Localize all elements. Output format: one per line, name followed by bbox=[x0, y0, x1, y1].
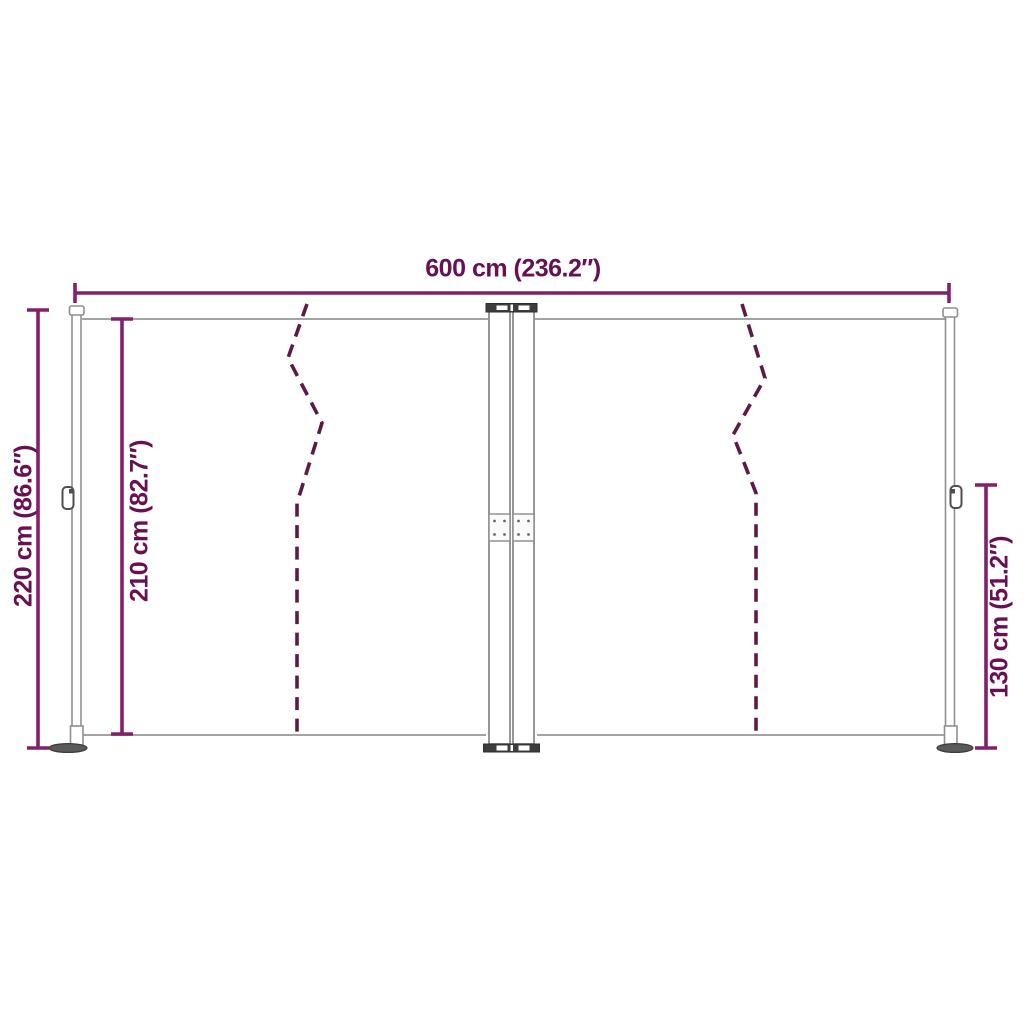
left-pole-foot bbox=[49, 744, 87, 753]
dimension-line-width bbox=[75, 283, 949, 303]
cassette-base-plate bbox=[484, 744, 540, 752]
right-pole bbox=[937, 308, 973, 752]
center-cassette bbox=[484, 304, 540, 753]
right-pole-foot bbox=[937, 744, 973, 753]
fold-line-right bbox=[733, 304, 765, 734]
left-pole-handle-pin bbox=[69, 489, 73, 494]
awning-dimension-diagram: 600 cm (236.2″) 220 cm (86.6″) 210 cm (8… bbox=[0, 0, 1024, 1024]
dimension-label-height-right: 130 cm (51.2″) bbox=[986, 536, 1015, 698]
left-pole bbox=[49, 306, 87, 752]
cassette-mounting-plates bbox=[489, 514, 534, 541]
fold-line-left bbox=[288, 304, 322, 734]
right-pole-handle-pin bbox=[951, 489, 955, 494]
dimension-label-width: 600 cm (236.2″) bbox=[425, 255, 600, 284]
right-pole-top-cap bbox=[943, 308, 958, 317]
left-pole-top-cap bbox=[70, 306, 85, 315]
dimension-label-height-fabric: 210 cm (82.7″) bbox=[126, 440, 155, 602]
cassette-top-cap bbox=[486, 304, 537, 313]
right-pole-bottom-collar bbox=[945, 726, 958, 746]
dimension-label-height-total: 220 cm (86.6″) bbox=[10, 445, 39, 607]
left-pole-bottom-collar bbox=[71, 726, 84, 746]
